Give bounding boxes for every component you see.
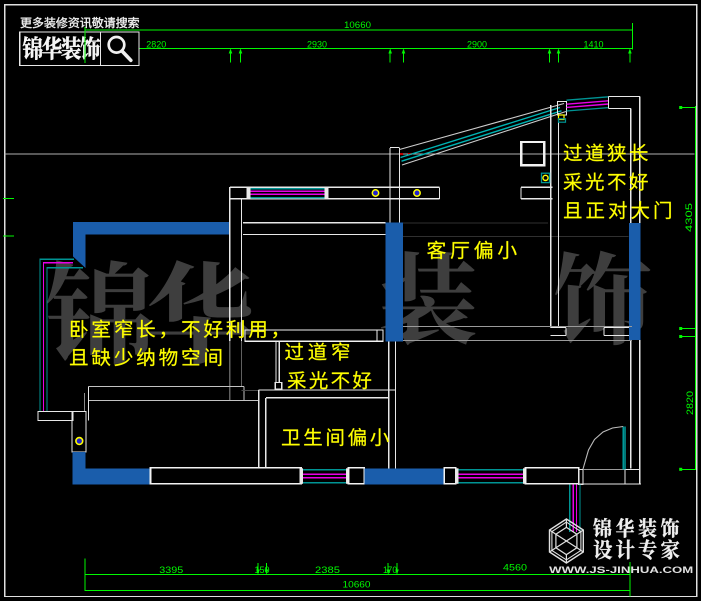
svg-text:2900: 2900 xyxy=(467,39,487,50)
svg-text:2930: 2930 xyxy=(307,39,327,50)
svg-text:2820: 2820 xyxy=(685,391,696,415)
svg-text:2820: 2820 xyxy=(146,39,166,50)
svg-text:2385: 2385 xyxy=(315,565,340,576)
svg-text:1410: 1410 xyxy=(584,39,604,50)
svg-text:3395: 3395 xyxy=(159,565,183,576)
svg-text:WWW.JS-JINHUA.COM: WWW.JS-JINHUA.COM xyxy=(549,565,693,575)
svg-text:170: 170 xyxy=(383,565,397,576)
svg-text:4560: 4560 xyxy=(503,563,527,574)
svg-text:150: 150 xyxy=(255,565,270,576)
svg-text:10660: 10660 xyxy=(344,20,371,31)
svg-text:10660: 10660 xyxy=(343,580,371,591)
svg-text:4305: 4305 xyxy=(684,203,695,232)
